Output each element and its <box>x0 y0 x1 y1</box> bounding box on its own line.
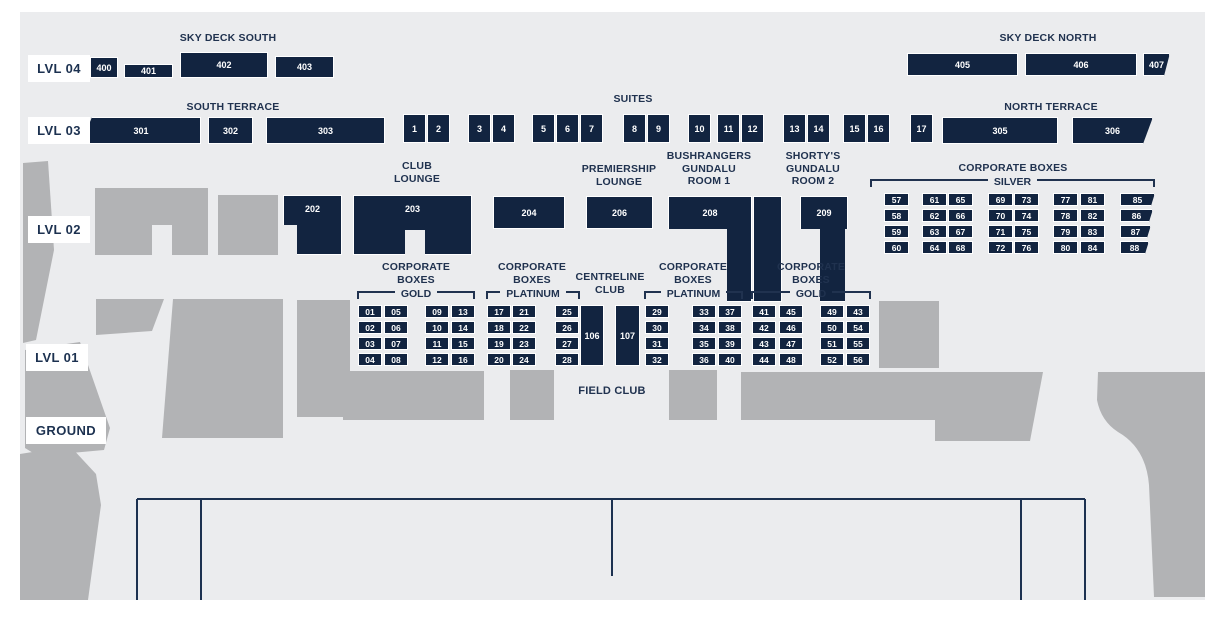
box-column: 77787980 <box>1053 193 1078 254</box>
corporate-boxes-gold-right-grid: 41424344454647484950515243545556 <box>752 305 870 366</box>
box-column: 43545556 <box>846 305 870 366</box>
seat-box-106[interactable]: 106 <box>580 305 604 366</box>
tier-label-gold: GOLD <box>395 289 437 300</box>
bracket-line <box>357 291 395 297</box>
seat-box-55[interactable]: 55 <box>846 337 870 350</box>
seat-box-13[interactable]: 13 <box>451 305 475 318</box>
seat-box-15[interactable]: 15 <box>451 337 475 350</box>
heading-premiership-lounge: PREMIERSHIP LOUNGE <box>573 163 665 188</box>
bracket-line <box>870 179 988 185</box>
seat-box-18[interactable]: 18 <box>487 321 511 334</box>
seat-box-23[interactable]: 23 <box>512 337 536 350</box>
seat-box-54[interactable]: 54 <box>846 321 870 334</box>
box-column: 41424344 <box>752 305 776 366</box>
seat-box-30[interactable]: 30 <box>645 321 669 334</box>
seat-box-86[interactable]: 86 <box>1120 209 1153 222</box>
seat-box-60[interactable]: 60 <box>884 241 909 254</box>
seat-box-77[interactable]: 77 <box>1053 193 1078 206</box>
seat-box-09[interactable]: 09 <box>425 305 449 318</box>
seat-box-05[interactable]: 05 <box>384 305 408 318</box>
heading-north-terrace: NORTH TERRACE <box>1004 101 1098 114</box>
box-column: 81828384 <box>1080 193 1105 254</box>
seat-box-02[interactable]: 02 <box>358 321 382 334</box>
seat-box-37[interactable]: 37 <box>718 305 742 318</box>
box-column: 33343536 <box>692 305 716 366</box>
box-column: 85868788 <box>1120 193 1155 254</box>
seat-box-51[interactable]: 51 <box>820 337 844 350</box>
seat-box-68[interactable]: 68 <box>948 241 973 254</box>
seat-box-08[interactable]: 08 <box>384 353 408 366</box>
seat-box-72[interactable]: 72 <box>988 241 1013 254</box>
seat-box-84[interactable]: 84 <box>1080 241 1105 254</box>
corporate-boxes-gold-left-grid: 01020304050607080910111213141516 <box>358 305 475 366</box>
seat-box-62[interactable]: 62 <box>922 209 947 222</box>
seat-box-88[interactable]: 88 <box>1120 241 1149 254</box>
seat-box-44[interactable]: 44 <box>752 353 776 366</box>
seat-box-50[interactable]: 50 <box>820 321 844 334</box>
box-column: 17181920 <box>487 305 511 366</box>
seat-box-03[interactable]: 03 <box>358 337 382 350</box>
heading-centreline-club: CENTRELINE CLUB <box>569 271 651 296</box>
box-column: 69707172 <box>988 193 1013 254</box>
heading-bushrangers-gundalu-room-1: BUSHRANGERS GUNDALU ROOM 1 <box>666 150 752 188</box>
tier-bracket-platinum-left: PLATINUM <box>486 289 580 300</box>
seat-box-46[interactable]: 46 <box>779 321 803 334</box>
heading-field-club: FIELD CLUB <box>578 385 645 398</box>
bracket-line <box>832 291 871 297</box>
seat-box-43[interactable]: 43 <box>752 337 776 350</box>
heading-corporate-boxes-platinum-left: CORPORATE BOXES <box>491 261 573 286</box>
seat-box-14[interactable]: 14 <box>451 321 475 334</box>
seat-box-01[interactable]: 01 <box>358 305 382 318</box>
tier-bracket-gold-left: GOLD <box>357 289 475 300</box>
seat-box-83[interactable]: 83 <box>1080 225 1105 238</box>
tier-label-silver: SILVER <box>988 177 1037 188</box>
seat-box-49[interactable]: 49 <box>820 305 844 318</box>
tier-label-gold: GOLD <box>790 289 832 300</box>
seat-box-27[interactable]: 27 <box>555 337 579 350</box>
bracket-line <box>751 291 790 297</box>
seat-box-31[interactable]: 31 <box>645 337 669 350</box>
box-column: 65666768 <box>948 193 973 254</box>
bracket-line <box>566 291 580 297</box>
box-column: 57585960 <box>884 193 909 254</box>
seat-box-107[interactable]: 107 <box>615 305 640 366</box>
seat-box-75[interactable]: 75 <box>1014 225 1039 238</box>
seat-box-33[interactable]: 33 <box>692 305 716 318</box>
box-column: 25262728 <box>555 305 579 366</box>
heading-sky-deck-north: SKY DECK NORTH <box>999 32 1096 45</box>
seat-box-07[interactable]: 07 <box>384 337 408 350</box>
seat-box-24[interactable]: 24 <box>512 353 536 366</box>
seat-box-76[interactable]: 76 <box>1014 241 1039 254</box>
box-column: 73747576 <box>1014 193 1039 254</box>
seat-box-40[interactable]: 40 <box>718 353 742 366</box>
box-column: 13141516 <box>451 305 475 366</box>
box-column: 37383940 <box>718 305 742 366</box>
seat-box-16[interactable]: 16 <box>451 353 475 366</box>
seat-box-39[interactable]: 39 <box>718 337 742 350</box>
seat-box-04[interactable]: 04 <box>358 353 382 366</box>
seat-box-64[interactable]: 64 <box>922 241 947 254</box>
level-label-lvl02: LVL 02 <box>28 216 90 243</box>
seat-box-25[interactable]: 25 <box>555 305 579 318</box>
seat-box-65[interactable]: 65 <box>948 193 973 206</box>
seat-box-10[interactable]: 10 <box>425 321 449 334</box>
tier-bracket-silver: SILVER <box>870 177 1155 188</box>
seat-box-69[interactable]: 69 <box>988 193 1013 206</box>
seat-box-52[interactable]: 52 <box>820 353 844 366</box>
seat-box-21[interactable]: 21 <box>512 305 536 318</box>
seat-box-67[interactable]: 67 <box>948 225 973 238</box>
seat-box-80[interactable]: 80 <box>1053 241 1078 254</box>
seat-box-43[interactable]: 43 <box>846 305 870 318</box>
seat-box-28[interactable]: 28 <box>555 353 579 366</box>
box-column: 61626364 <box>922 193 947 254</box>
seat-box-29[interactable]: 29 <box>645 305 669 318</box>
seat-box-20[interactable]: 20 <box>487 353 511 366</box>
seat-box-34[interactable]: 34 <box>692 321 716 334</box>
seat-box-06[interactable]: 06 <box>384 321 408 334</box>
seat-box-206[interactable]: 206 <box>586 196 653 229</box>
box-column: 29303132 <box>645 305 669 366</box>
level-label-lvl01: LVL 01 <box>26 344 88 371</box>
seat-box-78[interactable]: 78 <box>1053 209 1078 222</box>
tier-bracket-gold-right: GOLD <box>751 289 871 300</box>
seat-box-61[interactable]: 61 <box>922 193 947 206</box>
seat-box-204[interactable]: 204 <box>493 196 565 229</box>
heading-shortys-gundalu-room-2: SHORTY'S GUNDALU ROOM 2 <box>778 150 848 188</box>
box-column: 01020304 <box>358 305 382 366</box>
heading-south-terrace: SOUTH TERRACE <box>186 101 279 114</box>
level-label-lvl04: LVL 04 <box>28 55 90 82</box>
seat-box-59[interactable]: 59 <box>884 225 909 238</box>
heading-suites: SUITES <box>613 93 652 106</box>
seat-box-45[interactable]: 45 <box>779 305 803 318</box>
corporate-boxes-platinum-left-grid: 171819202122232425262728 <box>487 305 579 366</box>
box-column: 49505152 <box>820 305 844 366</box>
corporate-boxes-platinum-right-grid: 293031323334353637383940 <box>645 305 742 366</box>
corporate-boxes-silver-grid: 5758596061626364656667686970717273747576… <box>884 193 1156 254</box>
box-column: 45464748 <box>779 305 803 366</box>
seat-box-41[interactable]: 41 <box>752 305 776 318</box>
heading-corporate-boxes-platinum-right: CORPORATE BOXES <box>652 261 734 286</box>
seat-box-87[interactable]: 87 <box>1120 225 1151 238</box>
seat-box-35[interactable]: 35 <box>692 337 716 350</box>
heading-sky-deck-south: SKY DECK SOUTH <box>180 32 277 45</box>
seat-box-57[interactable]: 57 <box>884 193 909 206</box>
seat-box-81[interactable]: 81 <box>1080 193 1105 206</box>
seat-box-73[interactable]: 73 <box>1014 193 1039 206</box>
seat-box-36[interactable]: 36 <box>692 353 716 366</box>
seat-box-63[interactable]: 63 <box>922 225 947 238</box>
seat-box-79[interactable]: 79 <box>1053 225 1078 238</box>
seat-box-32[interactable]: 32 <box>645 353 669 366</box>
seat-box-11[interactable]: 11 <box>425 337 449 350</box>
seat-box-56[interactable]: 56 <box>846 353 870 366</box>
seat-box-38[interactable]: 38 <box>718 321 742 334</box>
centreline-club-boxes: 106107 <box>0 0 1224 623</box>
seat-box-70[interactable]: 70 <box>988 209 1013 222</box>
seat-box-42[interactable]: 42 <box>752 321 776 334</box>
seat-box-74[interactable]: 74 <box>1014 209 1039 222</box>
tier-label-platinum: PLATINUM <box>661 289 726 300</box>
seat-box-71[interactable]: 71 <box>988 225 1013 238</box>
seat-box-85[interactable]: 85 <box>1120 193 1155 206</box>
heading-corporate-boxes-silver: CORPORATE BOXES <box>938 162 1088 175</box>
seat-box-22[interactable]: 22 <box>512 321 536 334</box>
box-column: 09101112 <box>425 305 449 366</box>
level-label-ground: GROUND <box>26 417 106 444</box>
seat-box-82[interactable]: 82 <box>1080 209 1105 222</box>
seat-box-19[interactable]: 19 <box>487 337 511 350</box>
bracket-line <box>437 291 475 297</box>
bracket-line <box>1037 179 1155 185</box>
heading-corporate-boxes-gold-left: CORPORATE BOXES <box>375 261 457 286</box>
bracket-line <box>726 291 743 297</box>
seat-box-17[interactable]: 17 <box>487 305 511 318</box>
seat-box-58[interactable]: 58 <box>884 209 909 222</box>
heading-corporate-boxes-gold-right: CORPORATE BOXES <box>770 261 852 286</box>
bracket-line <box>644 291 661 297</box>
seat-box-48[interactable]: 48 <box>779 353 803 366</box>
seat-box-66[interactable]: 66 <box>948 209 973 222</box>
bracket-line <box>486 291 500 297</box>
seat-box-47[interactable]: 47 <box>779 337 803 350</box>
tier-label-platinum: PLATINUM <box>500 289 565 300</box>
box-column: 21222324 <box>512 305 536 366</box>
tier-bracket-platinum-right: PLATINUM <box>644 289 743 300</box>
box-column: 05060708 <box>384 305 408 366</box>
seat-box-12[interactable]: 12 <box>425 353 449 366</box>
seat-box-26[interactable]: 26 <box>555 321 579 334</box>
heading-club-lounge: CLUB LOUNGE <box>386 160 448 185</box>
level-label-lvl03: LVL 03 <box>28 117 90 144</box>
